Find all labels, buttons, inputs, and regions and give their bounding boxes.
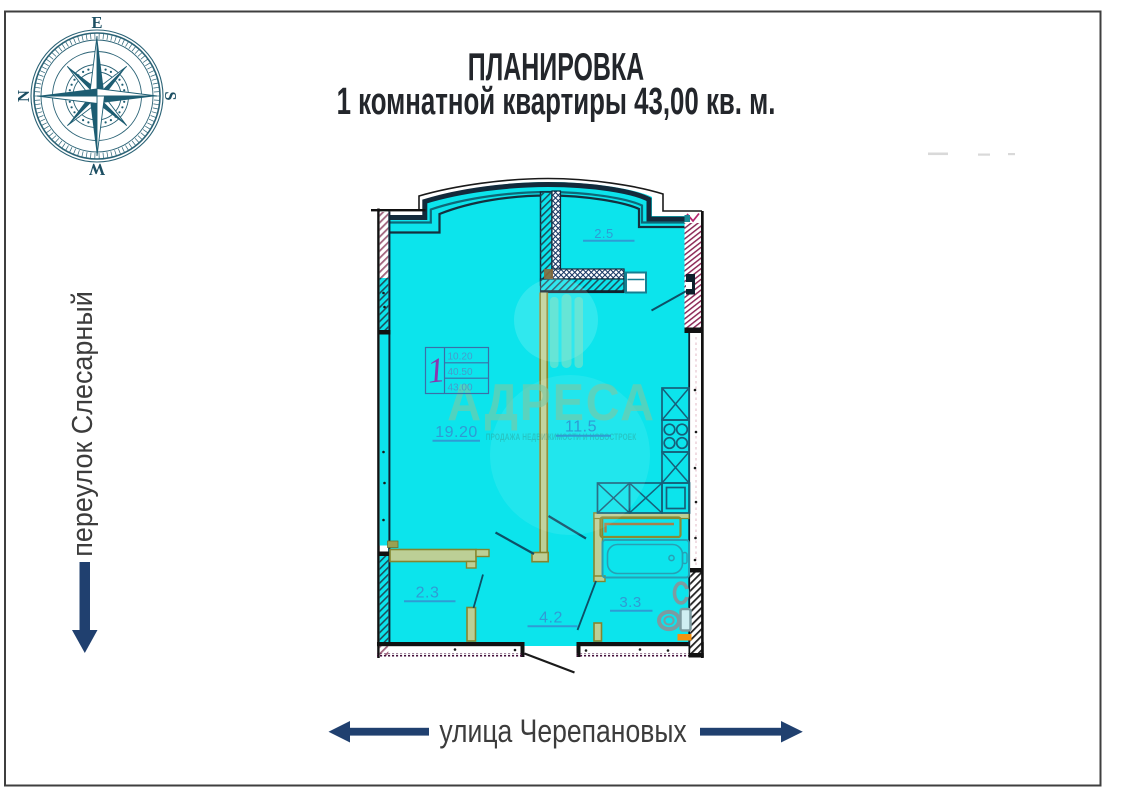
svg-text:N: N (14, 90, 33, 102)
svg-text:ПРОДАЖА НЕДВИЖИМОСТИ И НОВОСТР: ПРОДАЖА НЕДВИЖИМОСТИ И НОВОСТРОЕК (486, 432, 637, 442)
svg-text:АДРЕСА: АДРЕСА (447, 374, 655, 432)
svg-text:1 комнатной квартиры 43,00 кв.: 1 комнатной квартиры 43,00 кв. м. (337, 80, 776, 122)
svg-text:4.2: 4.2 (539, 610, 563, 627)
svg-text:10.20: 10.20 (448, 352, 473, 363)
svg-text:S: S (161, 91, 180, 100)
svg-text:переулок Слесарный: переулок Слесарный (66, 291, 98, 557)
svg-text:W: W (88, 160, 105, 179)
svg-text:43.00: 43.00 (448, 382, 473, 393)
svg-text:40.50: 40.50 (448, 367, 473, 378)
svg-text:11.5: 11.5 (565, 419, 597, 436)
svg-text:2.3: 2.3 (416, 585, 440, 602)
svg-text:3.3: 3.3 (619, 594, 641, 611)
svg-text:19.20: 19.20 (435, 424, 478, 441)
svg-text:2.5: 2.5 (594, 226, 614, 241)
svg-text:улица Черепановых: улица Черепановых (439, 714, 687, 750)
svg-text:E: E (91, 13, 102, 32)
